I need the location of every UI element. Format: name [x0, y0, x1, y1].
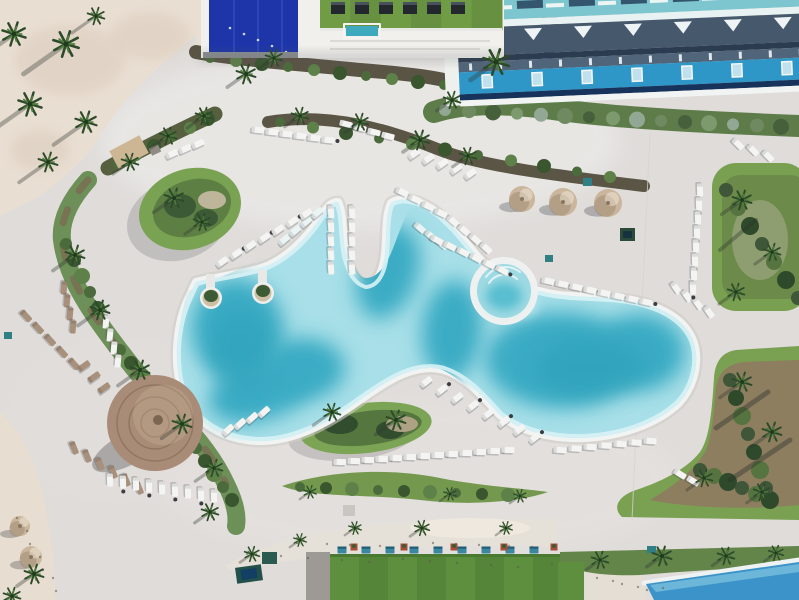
clubhouse-roof-line-1	[330, 40, 490, 42]
aerial-resort-photo	[0, 0, 799, 600]
small-turf-patch	[558, 562, 584, 600]
pool-core-1	[535, 338, 645, 398]
in-pool-planter-1-plants	[204, 290, 218, 302]
turf-top-edge	[330, 554, 562, 557]
spa-deep	[486, 282, 522, 310]
trash-bin-3	[647, 546, 656, 553]
palapa-peak	[153, 415, 163, 425]
lawn-chairs-row	[338, 547, 539, 554]
turf-wall	[306, 552, 330, 600]
clubhouse-roof-line-2	[330, 48, 480, 50]
loungers-peninsula-col2	[347, 204, 355, 275]
pool-deep-3	[265, 338, 345, 398]
gravel-mound	[410, 518, 530, 538]
trash-bin-4	[4, 332, 12, 339]
sand-shade-2	[110, 12, 190, 60]
building-shadow	[200, 52, 510, 62]
loungers-peninsula-col1	[326, 204, 334, 275]
event-lawn-turf	[330, 556, 563, 600]
oval-island-mulch	[198, 191, 226, 209]
pool-core-2	[210, 310, 270, 390]
game-table-2	[262, 552, 277, 564]
in-pool-planter-2-plants	[256, 285, 270, 297]
clubhouse-rooftop-pool	[346, 26, 378, 36]
concrete-pad	[343, 505, 355, 516]
photo-canvas	[0, 0, 799, 600]
fire-table-inner	[623, 231, 632, 238]
sand-shade-3	[10, 130, 70, 170]
trash-bin-1	[583, 178, 592, 186]
trash-bin-2	[545, 255, 553, 262]
